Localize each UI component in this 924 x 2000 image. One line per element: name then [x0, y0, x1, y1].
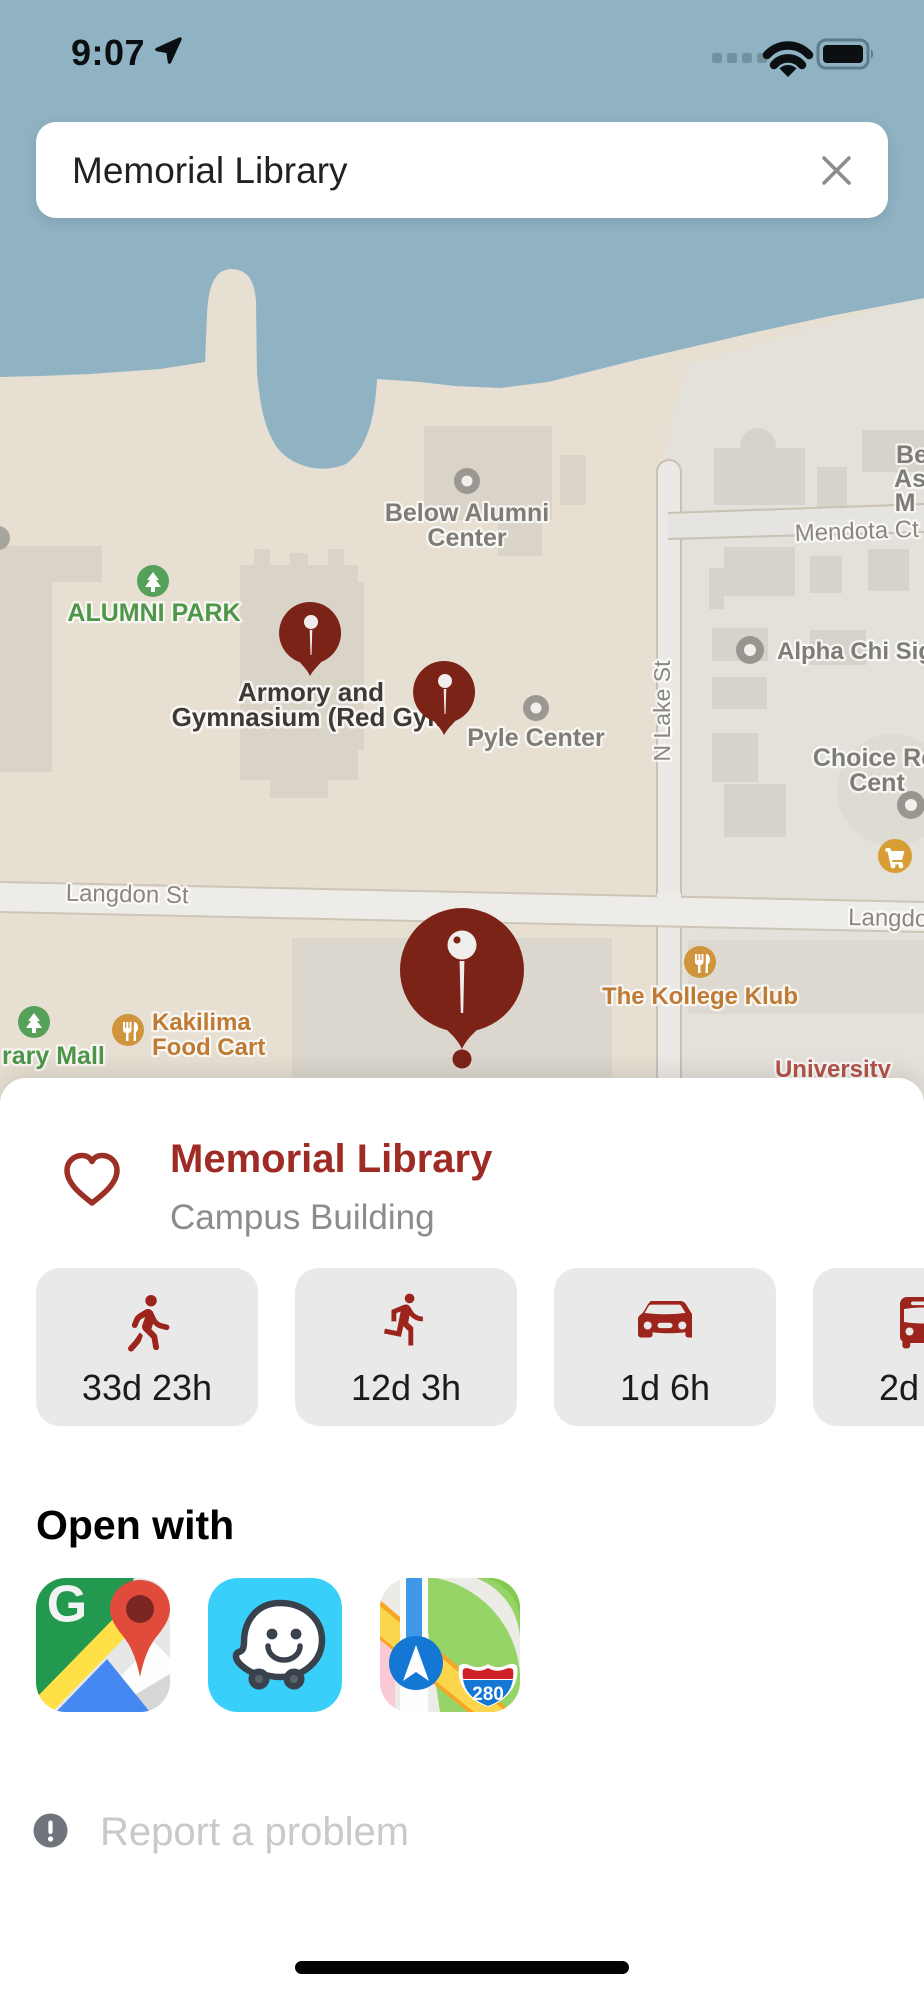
- svg-text:Pyle Center: Pyle Center: [467, 724, 605, 752]
- svg-text:M: M: [895, 489, 916, 517]
- svg-text:The Kollege Klub: The Kollege Klub: [602, 983, 798, 1010]
- svg-text:G: G: [47, 1578, 87, 1634]
- svg-text:Langdon St: Langdon St: [65, 880, 189, 910]
- svg-text:Cent: Cent: [849, 769, 905, 797]
- svg-text:N Lake St: N Lake St: [649, 660, 675, 762]
- svg-text:Langdon: Langdon: [848, 904, 924, 933]
- svg-text:Center: Center: [427, 524, 506, 552]
- svg-text:Kakilima: Kakilima: [152, 1009, 251, 1036]
- svg-text:Gymnasium (Red Gym: Gymnasium (Red Gym: [172, 702, 451, 732]
- svg-text:rary Mall: rary Mall: [2, 1042, 105, 1070]
- svg-text:Choice Re: Choice Re: [813, 744, 924, 772]
- svg-text:280: 280: [472, 1684, 504, 1705]
- svg-text:Mendota Ct: Mendota Ct: [794, 516, 919, 547]
- svg-text:Food Cart: Food Cart: [152, 1034, 265, 1061]
- svg-text:Alpha Chi Sign: Alpha Chi Sign: [777, 638, 924, 665]
- svg-text:Below Alumni: Below Alumni: [385, 499, 549, 527]
- svg-text:ALUMNI PARK: ALUMNI PARK: [67, 599, 240, 627]
